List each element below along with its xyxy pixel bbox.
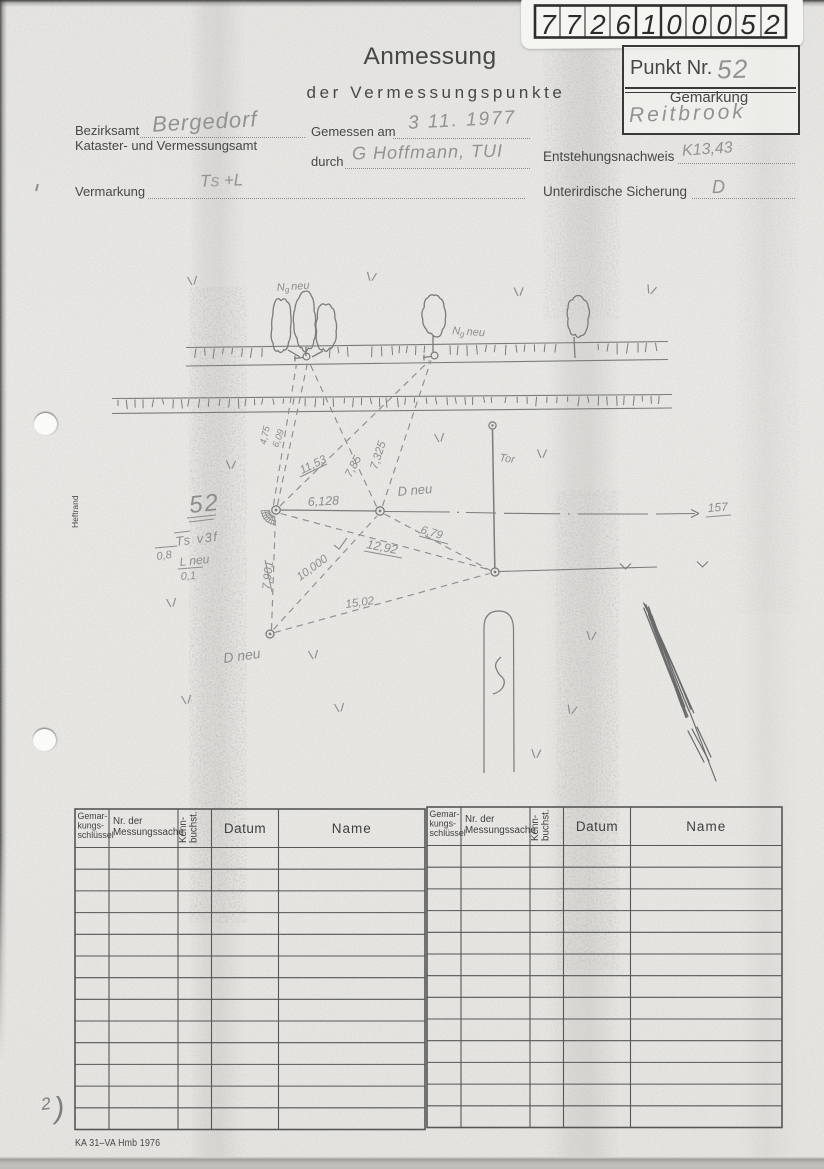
svg-text:Ngneu: Ngneu <box>452 325 486 340</box>
svg-text:L neu: L neu <box>179 552 210 569</box>
svg-text:10,000: 10,000 <box>295 553 331 584</box>
svg-text:7,325: 7,325 <box>368 439 388 471</box>
svg-text:Messungssache: Messungssache <box>465 825 536 836</box>
svg-text:2: 2 <box>39 1094 53 1114</box>
svg-text:Gemar-: Gemar- <box>77 811 107 821</box>
svg-text:7,85: 7,85 <box>343 453 364 479</box>
svg-text:Nr. der: Nr. der <box>113 816 143 827</box>
svg-text:15,02: 15,02 <box>345 595 376 611</box>
svg-text:Kenn-: Kenn- <box>530 815 541 841</box>
svg-text:Kenn-: Kenn- <box>177 816 188 842</box>
svg-text:6,128: 6,128 <box>307 493 339 509</box>
svg-text:buchst.: buchst. <box>188 811 199 843</box>
svg-text:52: 52 <box>188 489 221 519</box>
svg-text:Name: Name <box>331 821 371 836</box>
svg-text:): ) <box>50 1091 65 1125</box>
svg-text:Gemar-: Gemar- <box>430 809 460 819</box>
svg-text:Name: Name <box>686 819 726 834</box>
svg-text:Tor: Tor <box>499 452 517 466</box>
svg-text:Datum: Datum <box>223 821 265 836</box>
svg-text:D neu: D neu <box>397 481 433 499</box>
svg-text:kungs-: kungs- <box>430 819 456 829</box>
svg-text:0,1: 0,1 <box>180 570 196 583</box>
svg-text:Ngneu: Ngneu <box>276 280 310 295</box>
svg-text:0,8: 0,8 <box>156 549 174 563</box>
svg-text:kungs-: kungs- <box>77 820 103 830</box>
svg-text:buchst.: buchst. <box>540 809 551 841</box>
svg-text:6,09: 6,09 <box>270 427 287 449</box>
svg-text:D neu: D neu <box>222 645 261 666</box>
svg-text:schlüssel: schlüssel <box>77 830 113 840</box>
svg-text:Messungssache: Messungssache <box>113 827 184 838</box>
svg-text:Nr. der: Nr. der <box>465 814 495 825</box>
svg-text:Datum: Datum <box>576 819 618 834</box>
svg-text:157: 157 <box>707 500 729 515</box>
svg-text:schlüssel: schlüssel <box>430 828 466 838</box>
